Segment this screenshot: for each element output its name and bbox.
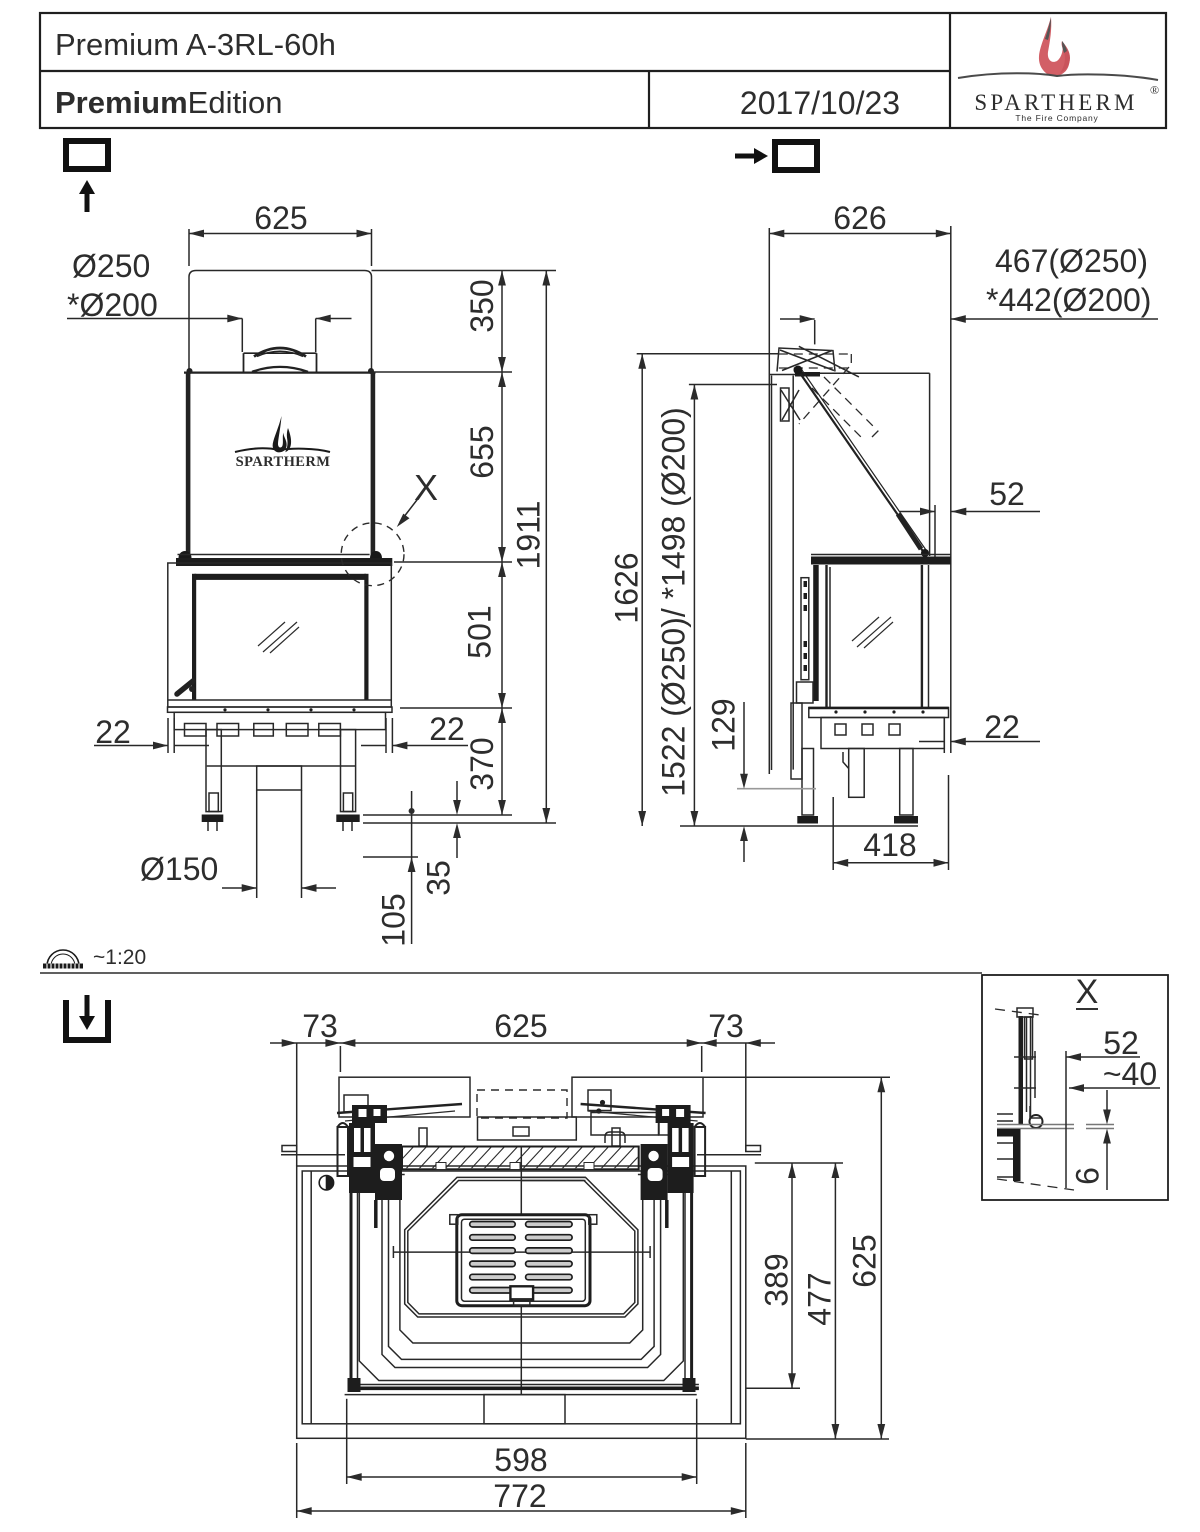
svg-text:2017/10/23: 2017/10/23	[740, 85, 900, 121]
svg-text:598: 598	[494, 1442, 547, 1478]
svg-text:SPARTHERM: SPARTHERM	[236, 454, 331, 470]
svg-text:~1:20: ~1:20	[93, 946, 146, 969]
svg-text:105: 105	[375, 893, 411, 946]
svg-text:350: 350	[464, 279, 500, 332]
svg-text:625: 625	[846, 1234, 882, 1287]
svg-text:SPARTHERM: SPARTHERM	[974, 90, 1137, 115]
svg-text:®: ®	[1150, 83, 1159, 97]
svg-text:22: 22	[984, 709, 1020, 745]
svg-text:1911: 1911	[510, 501, 546, 570]
svg-text:73: 73	[708, 1008, 744, 1044]
svg-text:Ø150: Ø150	[140, 851, 218, 887]
svg-text:22: 22	[95, 714, 131, 750]
svg-text:625: 625	[254, 200, 307, 236]
svg-text:73: 73	[302, 1008, 338, 1044]
svg-text:1522 (Ø250)/ *1498 (Ø200): 1522 (Ø250)/ *1498 (Ø200)	[655, 407, 691, 797]
svg-text:772: 772	[493, 1478, 546, 1514]
svg-text:625: 625	[494, 1008, 547, 1044]
svg-text:389: 389	[758, 1253, 794, 1306]
svg-text:PremiumEdition: PremiumEdition	[55, 85, 282, 120]
svg-text:6: 6	[1069, 1167, 1105, 1185]
svg-text:477: 477	[801, 1272, 837, 1325]
svg-text:Premium A-3RL-60h: Premium A-3RL-60h	[55, 27, 336, 62]
svg-text:501: 501	[461, 605, 497, 658]
svg-text:655: 655	[464, 425, 500, 478]
svg-text:*442(Ø200): *442(Ø200)	[986, 282, 1151, 318]
svg-text:X: X	[1076, 973, 1099, 1011]
svg-text:The Fire Company: The Fire Company	[1015, 113, 1098, 123]
svg-text:467(Ø250): 467(Ø250)	[995, 243, 1148, 279]
svg-text:*Ø200: *Ø200	[67, 287, 158, 323]
svg-text:626: 626	[833, 200, 886, 236]
svg-text:1626: 1626	[608, 552, 644, 623]
svg-text:X: X	[414, 467, 438, 508]
svg-text:Ø250: Ø250	[72, 248, 150, 284]
svg-text:418: 418	[863, 827, 916, 863]
svg-text:129: 129	[705, 698, 741, 751]
svg-text:370: 370	[464, 737, 500, 790]
svg-text:~40: ~40	[1103, 1056, 1157, 1092]
svg-text:52: 52	[989, 476, 1025, 512]
svg-text:35: 35	[420, 860, 456, 896]
svg-text:22: 22	[429, 711, 465, 747]
